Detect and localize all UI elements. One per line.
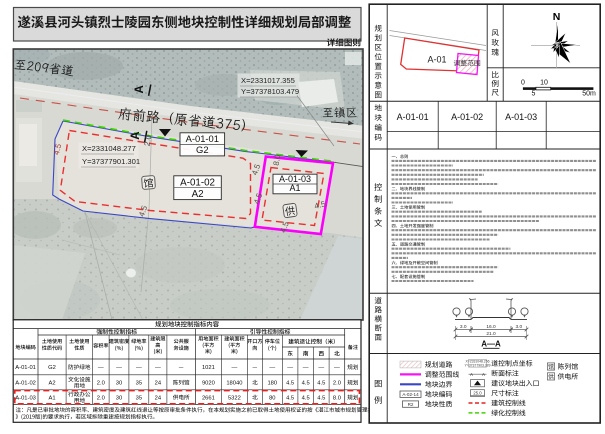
svg-text:A-01-02: A-01-02: [180, 178, 215, 189]
svg-text:50m: 50m: [582, 91, 596, 98]
svg-text:3.0: 3.0: [515, 324, 522, 330]
svg-text:24: 24: [155, 381, 162, 387]
svg-text:4.5: 4.5: [317, 395, 325, 401]
svg-text:24: 24: [155, 395, 162, 401]
svg-text:18040: 18040: [226, 381, 242, 387]
svg-text:9020: 9020: [202, 381, 215, 387]
svg-text:4.5: 4.5: [302, 395, 310, 401]
svg-text:—: —: [116, 365, 122, 371]
svg-text:80: 80: [269, 395, 275, 401]
svg-text:A-01-02: A-01-02: [15, 381, 36, 387]
svg-text:A: A: [130, 131, 142, 139]
svg-text:180: 180: [267, 381, 277, 387]
svg-text:—: —: [269, 365, 275, 371]
svg-text:4.5: 4.5: [286, 395, 294, 401]
svg-text:A: A: [134, 85, 146, 93]
svg-text:—: —: [155, 365, 161, 371]
svg-text:A—A: A—A: [481, 340, 501, 349]
svg-text:4.5: 4.5: [286, 381, 294, 387]
svg-text:—: —: [287, 365, 293, 371]
svg-text:8.0: 8.0: [333, 395, 341, 401]
svg-text:5: 5: [532, 91, 536, 98]
svg-text:35: 35: [136, 381, 142, 387]
svg-text:A2: A2: [192, 189, 204, 200]
svg-text:—: —: [334, 365, 340, 371]
svg-text:Y=37377901.301: Y=37377901.301: [82, 157, 140, 166]
svg-text:3.0: 3.0: [460, 324, 467, 330]
svg-text:A1: A1: [48, 395, 55, 401]
svg-text:A: A: [482, 372, 485, 377]
svg-text:A-01-02: A-01-02: [451, 112, 483, 122]
svg-text:0: 0: [521, 80, 525, 87]
svg-text:—: —: [136, 365, 142, 371]
svg-text:2.0: 2.0: [333, 381, 341, 387]
svg-text:2661: 2661: [202, 395, 215, 401]
svg-text:4.5: 4.5: [302, 381, 310, 387]
svg-text:10: 10: [540, 80, 548, 87]
svg-text:—: —: [318, 365, 324, 371]
svg-text:X=2331017.355: X=2331017.355: [241, 76, 295, 85]
svg-text:2.0: 2.0: [97, 395, 105, 401]
svg-text:A: A: [470, 372, 473, 377]
svg-text:30: 30: [116, 395, 122, 401]
svg-text:A-01-01: A-01-01: [186, 133, 219, 144]
svg-text:A-01-01: A-01-01: [15, 365, 36, 371]
svg-text:A-01-03: A-01-03: [15, 395, 36, 401]
svg-text:—: —: [303, 365, 309, 371]
svg-text:—: —: [232, 365, 238, 371]
svg-text:5322: 5322: [228, 395, 241, 401]
svg-text:16.0: 16.0: [486, 324, 496, 330]
svg-text:A-01: A-01: [427, 55, 446, 65]
svg-text:A-01-03: A-01-03: [505, 112, 537, 122]
svg-text:2.0: 2.0: [97, 381, 105, 387]
svg-text:30: 30: [116, 381, 122, 387]
svg-text:35: 35: [136, 395, 142, 401]
svg-text:G2: G2: [48, 365, 56, 371]
svg-text:X=2331048.277: X=2331048.277: [82, 144, 136, 153]
svg-text:25.0: 25.0: [473, 391, 482, 396]
svg-text:A1: A1: [289, 183, 300, 193]
svg-text:A2: A2: [48, 381, 55, 387]
svg-text:R2: R2: [408, 402, 414, 407]
svg-text:Y=37378103.479: Y=37378103.479: [241, 87, 299, 96]
svg-text:G2: G2: [196, 144, 209, 155]
svg-text:A-02-14: A-02-14: [402, 392, 419, 397]
svg-text:1021: 1021: [202, 365, 215, 371]
svg-text:A-01-01: A-01-01: [397, 112, 429, 122]
svg-text:4.5: 4.5: [317, 381, 325, 387]
svg-text:21.0: 21.0: [486, 331, 496, 337]
svg-text:N: N: [553, 11, 561, 23]
svg-text:—: —: [98, 365, 104, 371]
